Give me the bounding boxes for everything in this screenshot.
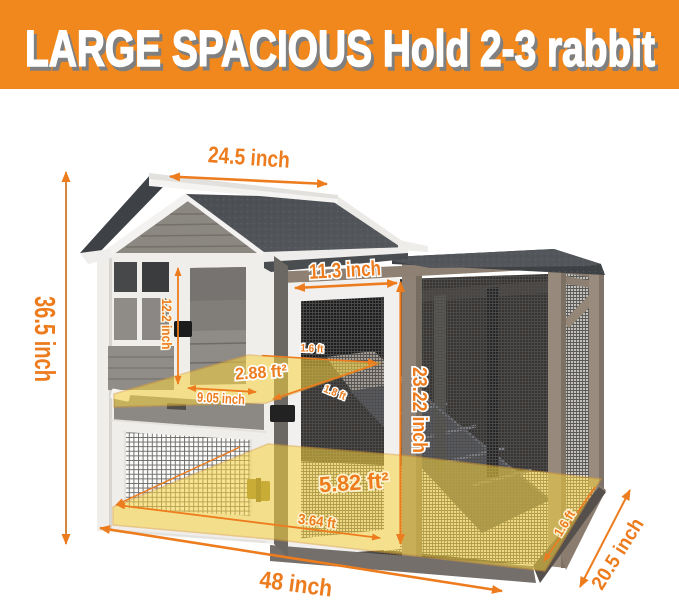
svg-text:2.88 ft²: 2.88 ft²: [234, 361, 288, 384]
svg-text:36.5 inch: 36.5 inch: [28, 296, 60, 382]
svg-text:9.05 inch: 9.05 inch: [197, 389, 246, 407]
svg-text:5.82 ft²: 5.82 ft²: [318, 468, 390, 498]
svg-text:LARGE SPACIOUS Hold 2-3 rabbit: LARGE SPACIOUS Hold 2-3 rabbit: [25, 20, 655, 77]
svg-text:23.22 inch: 23.22 inch: [408, 367, 430, 453]
svg-text:11.3 inch: 11.3 inch: [308, 257, 381, 284]
svg-text:1.6 ft: 1.6 ft: [300, 342, 324, 355]
svg-text:12.2 inch: 12.2 inch: [159, 299, 175, 350]
